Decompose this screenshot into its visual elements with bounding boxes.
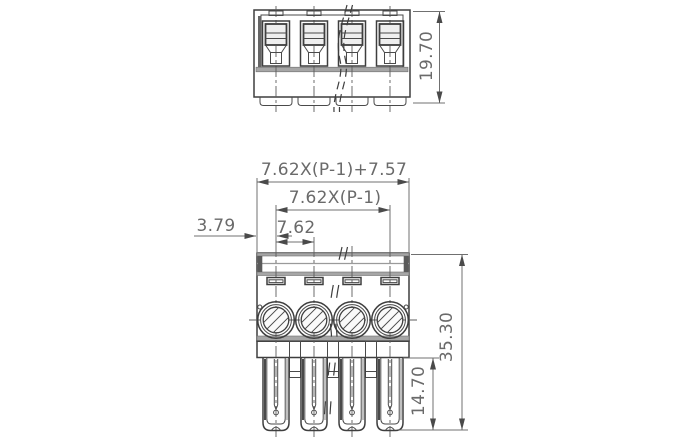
drawing-svg xyxy=(0,0,680,440)
dim-label-edge-offset: 3.79 xyxy=(178,216,254,236)
dim-label-overall-height: 35.30 xyxy=(437,297,457,377)
dim-label-overall-width: 7.62X(P-1)+7.57 xyxy=(224,160,444,180)
dim-label-pin-length: 14.70 xyxy=(409,351,429,431)
technical-drawing-canvas: 7.62X(P-1)+7.57 7.62X(P-1) 7.62 3.79 19.… xyxy=(0,0,680,440)
top-view xyxy=(254,5,410,112)
dim-label-pitch-span: 7.62X(P-1) xyxy=(235,188,435,208)
dim-label-top-view-height: 19.70 xyxy=(417,16,437,96)
dim-label-pitch: 7.62 xyxy=(258,218,334,238)
front-view xyxy=(249,246,417,440)
